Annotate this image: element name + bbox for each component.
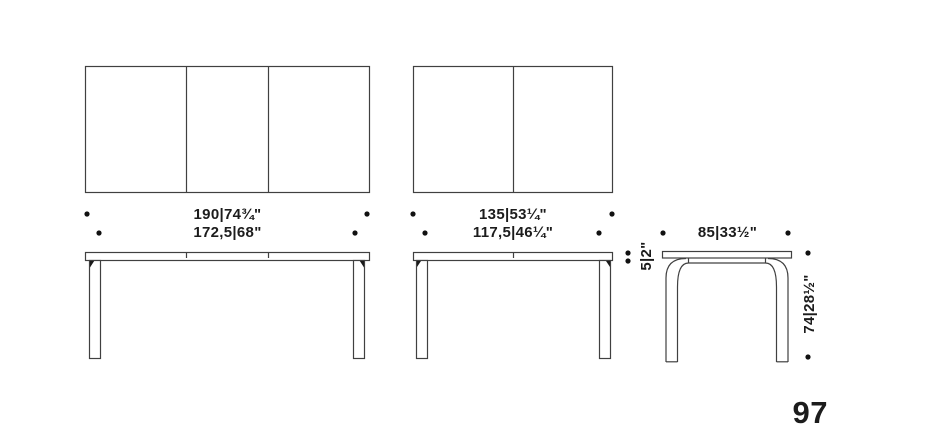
dim-label-large-width-closed: 172,5|68" bbox=[85, 224, 370, 242]
dim-label-medium-width-extended: 135|53¼" bbox=[413, 206, 613, 224]
table-large-leg-left bbox=[90, 261, 101, 359]
dim-label-large-width-extended: 190|74¾" bbox=[85, 206, 370, 224]
table-side-leg-right-outer-edge bbox=[768, 259, 788, 363]
dim-label-side-depth: 85|33½" bbox=[664, 224, 791, 242]
dim-label-side-top-thickness: 5|2" bbox=[638, 236, 654, 276]
table-large-top-slab bbox=[86, 253, 370, 261]
table-large-top-view bbox=[86, 67, 370, 193]
table-large-tabletop-outline bbox=[86, 67, 370, 193]
table-medium-leg-left bbox=[417, 261, 428, 359]
dot-thickness-bottom bbox=[625, 258, 630, 263]
table-side-leg-right-inner-edge bbox=[766, 263, 777, 362]
dot-height-bottom bbox=[805, 354, 810, 359]
dim-label-side-height: 74|28½" bbox=[801, 267, 817, 341]
table-side-top-slab bbox=[663, 252, 792, 259]
table-large-front-view bbox=[86, 253, 370, 359]
table-side-view bbox=[663, 252, 792, 363]
table-large-leg-right bbox=[354, 261, 365, 359]
table-medium-leg-right bbox=[600, 261, 611, 359]
dot-thickness-top bbox=[625, 250, 630, 255]
table-side-leg-left-outer-edge bbox=[666, 259, 686, 363]
dim-label-medium-width-closed: 117,5|46¼" bbox=[413, 224, 613, 242]
table-side-leg-left-inner-edge bbox=[678, 263, 689, 362]
page-number: 97 bbox=[760, 396, 828, 430]
table-medium-top-view bbox=[414, 67, 613, 193]
dot-height-top bbox=[805, 250, 810, 255]
table-medium-front-view bbox=[414, 253, 613, 359]
dimension-diagram-page: 190|74¾" 172,5|68" 135|53¼" 117,5|46¼" 8… bbox=[0, 0, 927, 444]
